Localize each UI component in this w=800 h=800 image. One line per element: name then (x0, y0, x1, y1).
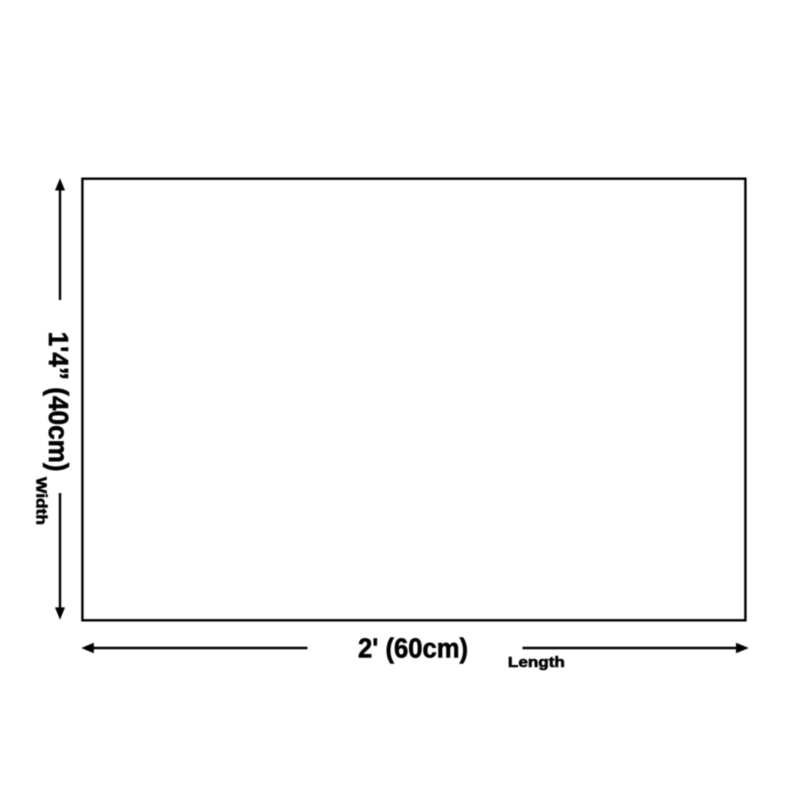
svg-text:2' (60cm): 2' (60cm) (358, 632, 468, 663)
svg-text:Width: Width (32, 477, 49, 525)
svg-text:Length: Length (508, 654, 565, 671)
svg-text:1'4” (40cm): 1'4” (40cm) (43, 332, 74, 472)
